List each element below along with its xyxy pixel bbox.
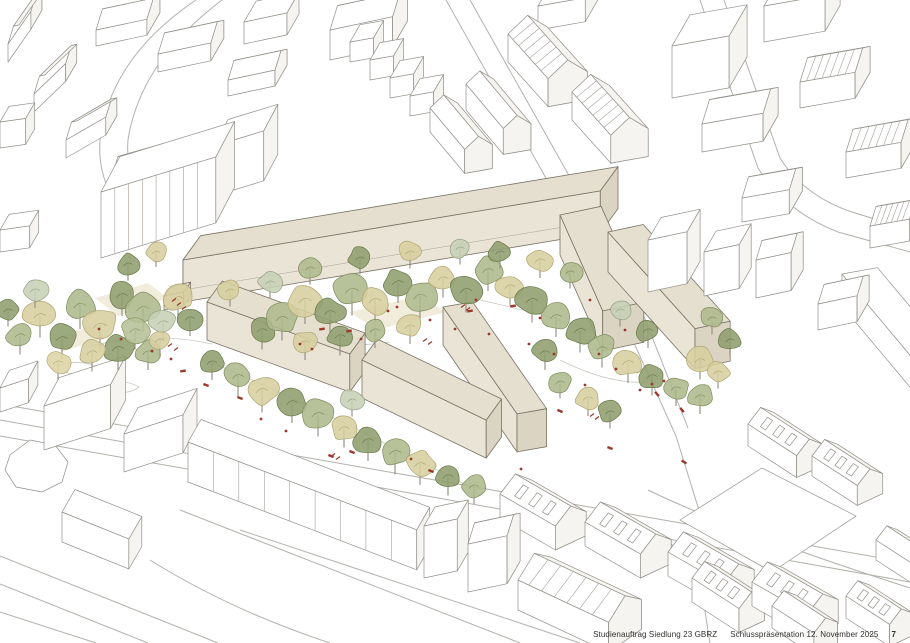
bench xyxy=(203,383,209,387)
bench xyxy=(557,409,563,413)
context-building xyxy=(800,46,870,108)
tree-canopy xyxy=(687,385,712,406)
person xyxy=(98,328,101,331)
person xyxy=(299,343,302,346)
context-building xyxy=(34,44,77,112)
building-front-face xyxy=(468,536,507,592)
context-building xyxy=(158,20,224,72)
tree-canopy xyxy=(575,387,598,410)
tree-canopy xyxy=(365,319,385,342)
context-building xyxy=(8,0,42,62)
context-building xyxy=(66,98,117,158)
building-front-face xyxy=(672,36,729,98)
building-end-face xyxy=(517,409,547,452)
bicycle xyxy=(428,342,432,345)
road xyxy=(0,584,148,643)
person xyxy=(615,368,618,371)
bench xyxy=(349,450,355,454)
context-building xyxy=(424,500,468,578)
site-axonometric-drawing xyxy=(0,0,910,643)
tree-canopy xyxy=(47,351,71,373)
person xyxy=(553,353,556,356)
tree-canopy xyxy=(560,263,583,283)
tree-canopy xyxy=(277,388,306,416)
context-building xyxy=(756,232,803,298)
context-building xyxy=(704,224,751,296)
person xyxy=(639,389,642,392)
tree-canopy xyxy=(462,475,486,498)
person xyxy=(387,310,390,313)
context-building xyxy=(702,87,778,152)
context-building xyxy=(62,490,142,570)
person xyxy=(488,333,491,336)
context-building xyxy=(748,407,822,477)
context-building xyxy=(672,5,747,98)
building-front-face xyxy=(764,0,825,42)
tree-canopy xyxy=(0,299,19,320)
building-front-face xyxy=(0,118,26,148)
context-building xyxy=(764,0,840,42)
context-building xyxy=(812,439,883,505)
presentation-label: Schlusspräsentation 12. November 2025 xyxy=(730,630,878,640)
page-number: 7 xyxy=(891,630,896,640)
person xyxy=(651,383,654,386)
bench xyxy=(510,304,516,307)
context-building xyxy=(124,388,197,472)
person xyxy=(520,468,523,471)
tree-canopy xyxy=(406,450,436,476)
person xyxy=(429,319,432,322)
bench xyxy=(654,391,659,397)
person xyxy=(410,458,413,461)
context-building xyxy=(876,526,910,583)
person xyxy=(539,317,542,320)
tree-canopy xyxy=(340,390,364,410)
tree-canopy xyxy=(122,318,151,344)
parcel-outline xyxy=(5,440,68,492)
building-front-face xyxy=(704,245,739,297)
person xyxy=(396,306,399,309)
tree-canopy xyxy=(23,280,49,301)
person xyxy=(120,338,123,341)
tree-canopy xyxy=(248,378,279,406)
person xyxy=(598,353,601,356)
tree-canopy xyxy=(549,372,572,392)
tree-canopy xyxy=(636,320,658,341)
bicycle xyxy=(423,339,427,342)
bench xyxy=(607,446,613,450)
bicycle xyxy=(174,348,178,351)
context-building xyxy=(0,210,39,252)
bench xyxy=(237,396,243,400)
tree-canopy xyxy=(708,362,731,382)
building-front-face xyxy=(756,253,791,299)
tree-canopy xyxy=(303,399,334,428)
person xyxy=(584,384,587,387)
person xyxy=(151,350,154,353)
person xyxy=(589,299,592,302)
bicycle xyxy=(590,414,594,417)
person xyxy=(285,430,288,433)
person xyxy=(260,418,263,421)
tree-canopy xyxy=(450,276,483,303)
tree-canopy xyxy=(406,283,438,311)
tree-canopy xyxy=(383,439,410,465)
person xyxy=(311,348,314,351)
tree-canopy xyxy=(200,350,224,372)
title-block: Studienauftrag Siedlung 23 GBRZ Schlussp… xyxy=(593,630,896,640)
person xyxy=(624,329,627,332)
person xyxy=(663,380,666,383)
building-front-face xyxy=(0,226,30,252)
context-building xyxy=(468,513,520,592)
presentation-slide: Studienauftrag Siedlung 23 GBRZ Schlussp… xyxy=(0,0,910,643)
building-front-face xyxy=(424,519,457,578)
building-end-face xyxy=(825,0,840,31)
tree-canopy xyxy=(149,332,169,350)
context-building xyxy=(572,74,648,163)
bicycle xyxy=(168,344,172,347)
person xyxy=(170,358,173,361)
person xyxy=(475,299,478,302)
person xyxy=(360,338,363,341)
tree-canopy xyxy=(613,350,642,374)
context-building xyxy=(870,198,910,248)
context-building xyxy=(0,103,35,148)
road xyxy=(150,560,330,643)
building-front-face xyxy=(648,232,687,292)
tree-canopy xyxy=(515,287,548,315)
tree-canopy xyxy=(146,242,167,262)
context-building xyxy=(0,361,38,412)
tree-canopy xyxy=(532,339,557,361)
tree-canopy xyxy=(177,309,203,330)
context-building xyxy=(96,0,160,46)
person xyxy=(454,328,457,331)
tree-canopy xyxy=(450,239,469,258)
context-building xyxy=(846,118,910,178)
bicycle xyxy=(336,457,340,460)
bicycle xyxy=(595,417,599,420)
bench xyxy=(180,369,186,372)
tree-canopy xyxy=(436,466,460,487)
context-building xyxy=(742,167,802,222)
project-title: Studienauftrag Siedlung 23 GBRZ xyxy=(593,630,717,640)
person xyxy=(528,343,531,346)
tree-canopy xyxy=(664,378,689,399)
context-building xyxy=(538,0,598,30)
tree-canopy xyxy=(527,250,554,271)
road xyxy=(0,556,218,643)
context-building xyxy=(244,0,299,44)
context-building xyxy=(228,49,287,96)
tree-canopy xyxy=(118,253,140,275)
building-end-face xyxy=(585,0,598,22)
tree-canopy xyxy=(332,416,357,440)
